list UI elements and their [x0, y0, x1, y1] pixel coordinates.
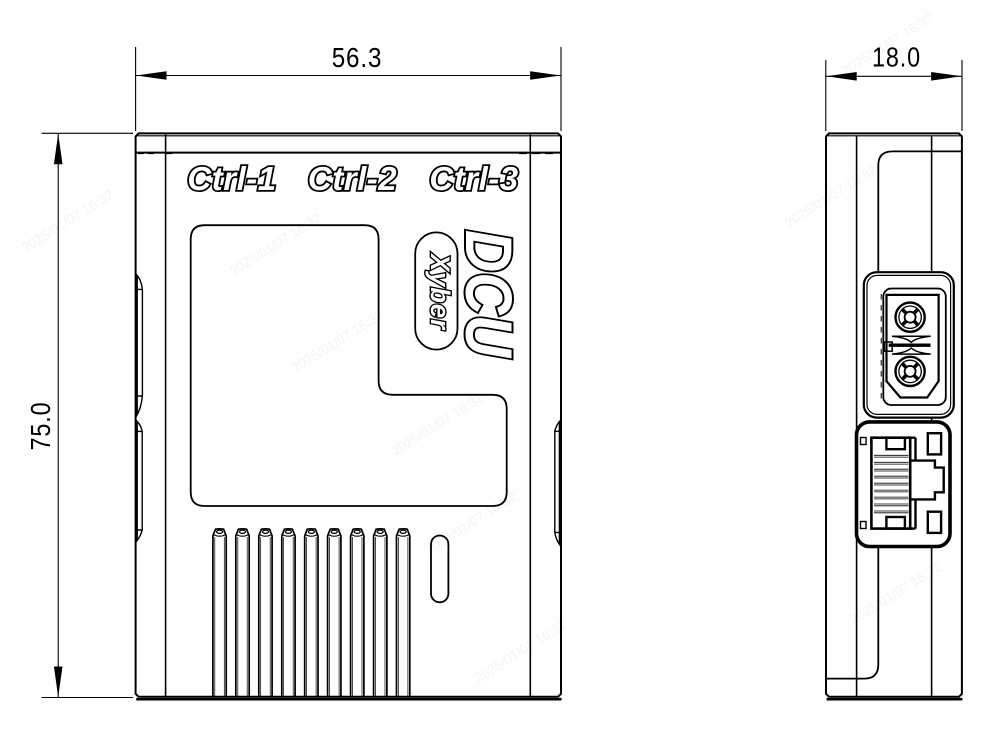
svg-text:2025/01/07 16:32: 2025/01/07 16:32 [847, 559, 944, 627]
svg-text:18.0: 18.0 [872, 43, 921, 73]
svg-text:Xyber: Xyber [425, 252, 456, 331]
svg-text:Ctrl-2: Ctrl-2 [308, 160, 397, 197]
svg-text:2025/01/07 16:32: 2025/01/07 16:32 [472, 617, 569, 685]
svg-text:56.3: 56.3 [332, 44, 383, 74]
svg-text:75.0: 75.0 [26, 402, 56, 451]
svg-text:2025/01/07 16:32: 2025/01/07 16:32 [19, 187, 116, 255]
svg-text:2025/01/07 16:32: 2025/01/07 16:32 [389, 390, 486, 458]
svg-text:Ctrl-1: Ctrl-1 [187, 160, 276, 197]
svg-text:DCU: DCU [451, 230, 525, 359]
svg-text:Ctrl-3: Ctrl-3 [429, 160, 518, 197]
svg-text:2025/01/07 16:32: 2025/01/07 16:32 [227, 210, 324, 278]
svg-text:2025/01/07 16:32: 2025/01/07 16:32 [289, 307, 386, 375]
svg-text:2025/01/07 16:32: 2025/01/07 16:32 [782, 162, 879, 230]
